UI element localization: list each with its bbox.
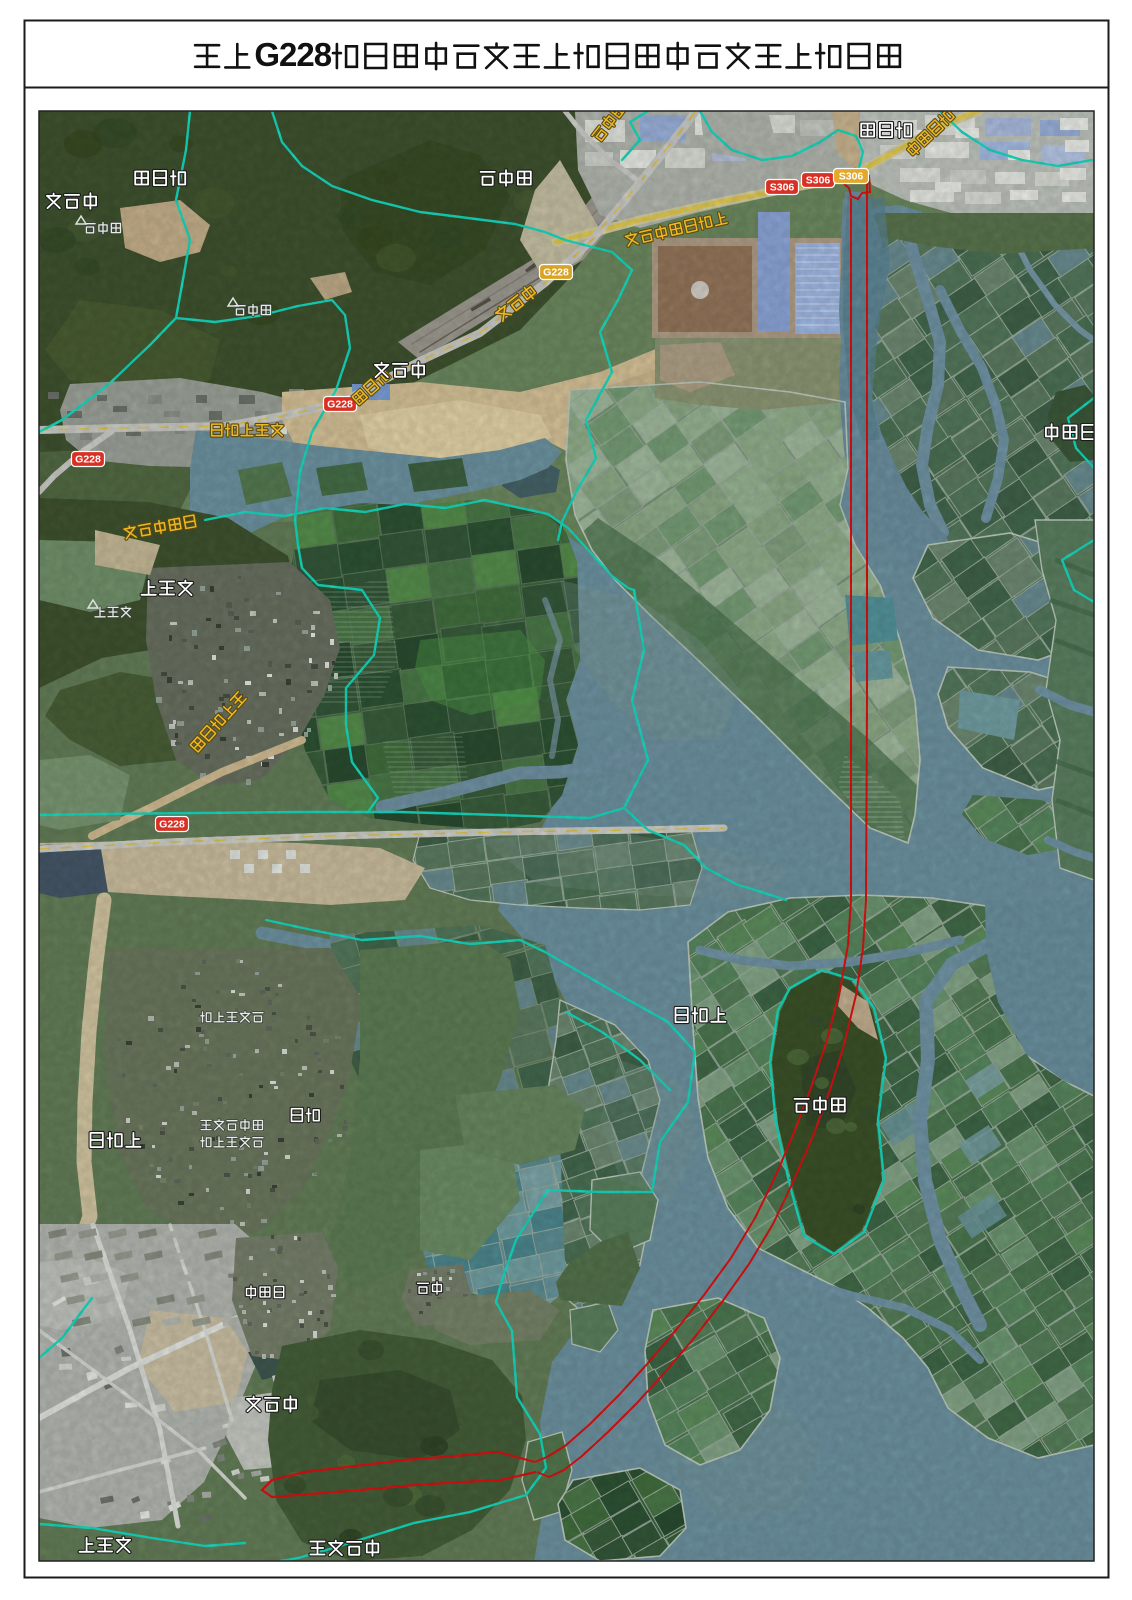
svg-text:G228: G228: [159, 819, 185, 831]
svg-text:G228: G228: [254, 36, 331, 73]
svg-text:G228: G228: [75, 454, 101, 466]
svg-text:S306: S306: [770, 182, 795, 194]
svg-text:S306: S306: [839, 171, 864, 183]
svg-text:G228: G228: [543, 267, 569, 279]
svg-text:S306: S306: [806, 175, 831, 187]
svg-text:G228: G228: [327, 399, 353, 411]
